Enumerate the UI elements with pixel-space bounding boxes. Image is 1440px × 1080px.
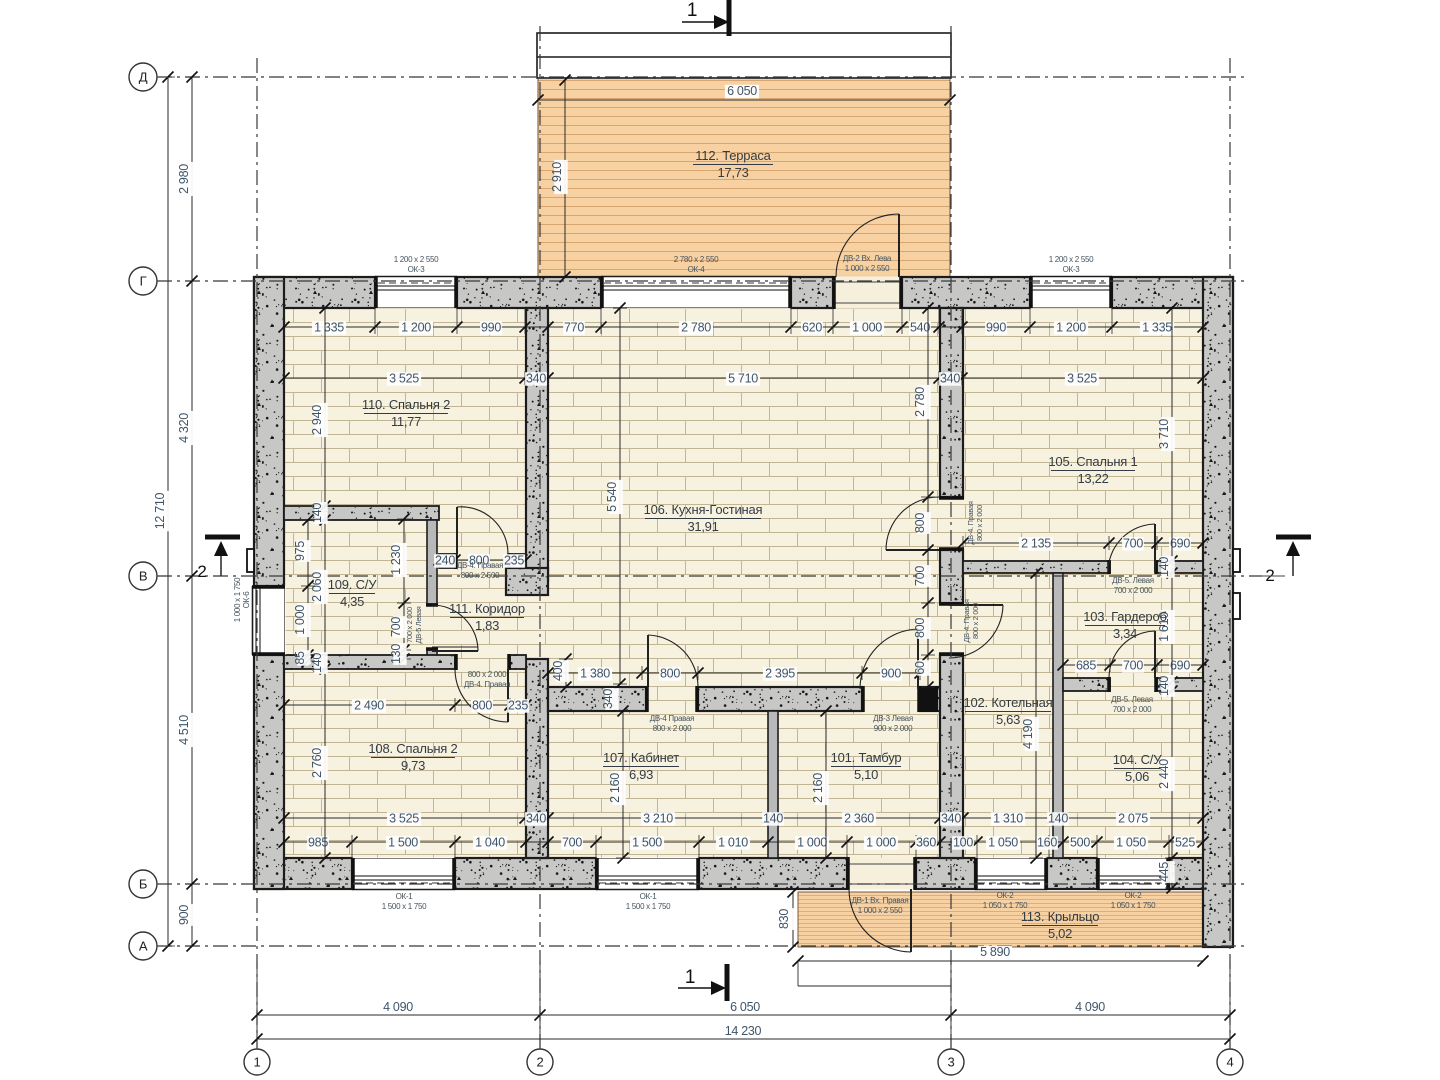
svg-text:2 135: 2 135 [1021,537,1051,551]
svg-text:2 075: 2 075 [1118,812,1148,826]
svg-text:1 500 x 1 750: 1 500 x 1 750 [626,902,671,911]
svg-text:620: 620 [802,321,822,335]
svg-text:5,10: 5,10 [854,767,878,782]
svg-text:540: 540 [910,321,930,335]
svg-text:1 380: 1 380 [580,667,610,681]
svg-text:800 x 2 000: 800 x 2 000 [468,670,507,679]
svg-text:340: 340 [526,812,546,826]
svg-text:900: 900 [177,905,191,925]
svg-text:17,73: 17,73 [717,165,748,180]
svg-text:А: А [139,939,148,954]
svg-text:1: 1 [685,967,695,988]
svg-text:1 000: 1 000 [293,605,307,635]
svg-text:1 000 x 1 750: 1 000 x 1 750 [233,577,242,622]
svg-text:В: В [139,569,147,584]
svg-text:5 890: 5 890 [980,945,1010,959]
svg-text:ОК-2: ОК-2 [997,891,1015,900]
svg-text:113. Крыльцо: 113. Крыльцо [1021,909,1100,924]
svg-text:360: 360 [916,836,936,850]
svg-text:6,93: 6,93 [629,767,653,782]
svg-text:2 490: 2 490 [354,699,384,713]
svg-text:830: 830 [777,909,791,929]
svg-text:6 050: 6 050 [727,84,757,98]
svg-text:1 010: 1 010 [718,836,748,850]
svg-text:3 525: 3 525 [1067,372,1097,386]
svg-text:2 360: 2 360 [844,812,874,826]
svg-text:3 710: 3 710 [1157,419,1171,449]
svg-text:800: 800 [913,513,927,533]
svg-text:ДВ-4. Правая: ДВ-4. Правая [464,680,510,689]
svg-text:31,91: 31,91 [687,519,718,534]
svg-text:101. Тамбур: 101. Тамбур [831,750,902,765]
svg-text:1 000 x 2 550: 1 000 x 2 550 [858,906,903,915]
svg-text:ДВ-4. Правая: ДВ-4. Правая [457,561,503,570]
svg-text:340: 340 [526,372,546,386]
svg-text:2 780: 2 780 [913,387,927,417]
svg-text:11,77: 11,77 [391,414,421,429]
svg-text:700: 700 [562,836,582,850]
svg-text:1 200: 1 200 [401,321,431,335]
svg-text:800: 800 [472,699,492,713]
svg-text:340: 340 [941,812,961,826]
svg-text:12 710: 12 710 [153,492,167,529]
svg-text:1 050: 1 050 [988,836,1018,850]
svg-text:500: 500 [1070,836,1090,850]
svg-text:4 090: 4 090 [1075,1000,1105,1014]
svg-text:2 760: 2 760 [310,748,324,778]
svg-text:1 040: 1 040 [475,836,505,850]
svg-text:1 000 x 2 550: 1 000 x 2 550 [845,264,890,273]
svg-text:1 050 x 1 750: 1 050 x 1 750 [1111,901,1156,910]
svg-text:1 500 x 1 750: 1 500 x 1 750 [382,902,427,911]
svg-text:800 x 2 500: 800 x 2 500 [461,571,500,580]
svg-text:1 050: 1 050 [1116,836,1146,850]
svg-text:ОК-1: ОК-1 [640,892,658,901]
svg-text:103. Гардероб: 103. Гардероб [1083,609,1167,624]
svg-text:2 395: 2 395 [765,667,795,681]
svg-text:800: 800 [913,618,927,638]
svg-text:106. Кухня-Гостиная: 106. Кухня-Гостиная [644,502,763,517]
svg-text:2 780 x 2 550: 2 780 x 2 550 [674,255,719,264]
svg-text:5,02: 5,02 [1048,926,1072,941]
svg-text:800: 800 [660,667,680,681]
svg-text:4 320: 4 320 [177,413,191,443]
svg-text:ДВ-5 Левая: ДВ-5 Левая [414,606,423,643]
svg-text:102. Котельная: 102. Котельная [963,695,1052,710]
svg-text:975: 975 [293,541,307,561]
svg-text:2 910: 2 910 [550,162,564,192]
svg-text:ДВ-1 Вх. Правая: ДВ-1 Вх. Правая [852,896,909,905]
svg-text:800 x 2 000: 800 x 2 000 [975,505,984,541]
svg-text:2 940: 2 940 [310,405,324,435]
svg-text:1 335: 1 335 [1142,321,1172,335]
svg-text:990: 990 [481,321,501,335]
svg-text:1: 1 [254,1055,261,1070]
svg-text:990: 990 [986,321,1006,335]
svg-text:5,06: 5,06 [1125,769,1149,784]
svg-text:ДВ-4. Правая: ДВ-4. Правая [962,599,971,642]
svg-text:2: 2 [197,562,206,581]
svg-text:690: 690 [1170,659,1190,673]
svg-text:110. Спальня 2: 110. Спальня 2 [362,397,450,412]
svg-text:111. Коридор: 111. Коридор [449,601,525,616]
svg-text:107. Кабинет: 107. Кабинет [603,750,679,765]
svg-text:6 050: 6 050 [730,1000,760,1014]
svg-text:2 980: 2 980 [177,164,191,194]
svg-text:3 525: 3 525 [389,372,419,386]
svg-text:235: 235 [504,554,524,568]
svg-text:240: 240 [435,554,455,568]
svg-text:685: 685 [1076,659,1096,673]
svg-text:1 200 x 2 550: 1 200 x 2 550 [1049,255,1094,264]
svg-text:900 x 2 000: 900 x 2 000 [874,724,913,733]
svg-text:ДВ-3 Левая: ДВ-3 Левая [873,714,913,723]
svg-text:ОК-6: ОК-6 [242,591,251,609]
svg-text:13,22: 13,22 [1077,471,1108,486]
svg-text:700 x 2 000: 700 x 2 000 [1113,705,1152,714]
svg-text:400: 400 [551,661,565,681]
svg-text:140: 140 [763,812,783,826]
svg-text:3 525: 3 525 [389,812,419,826]
svg-text:1 230: 1 230 [389,545,403,575]
svg-text:109. С/У: 109. С/У [328,577,378,592]
svg-text:1 310: 1 310 [993,812,1023,826]
svg-text:1,83: 1,83 [475,618,499,633]
svg-text:130: 130 [389,644,403,664]
svg-text:160: 160 [1037,836,1057,850]
svg-text:Д: Д [139,70,148,85]
svg-text:140: 140 [1048,812,1068,826]
svg-text:ДВ-4. Правая: ДВ-4. Правая [966,501,975,544]
svg-text:Г: Г [140,274,147,289]
svg-text:700: 700 [389,617,403,637]
svg-text:ОК-1: ОК-1 [396,892,414,901]
svg-text:445: 445 [1157,862,1171,882]
svg-text:340: 340 [601,689,615,709]
svg-text:2 160: 2 160 [811,773,825,803]
svg-text:4 510: 4 510 [177,715,191,745]
svg-text:ДВ-5. Левая: ДВ-5. Левая [1111,695,1153,704]
svg-text:112. Терраса: 112. Терраса [695,148,771,163]
svg-text:140: 140 [1157,676,1171,696]
svg-text:1 000: 1 000 [866,836,896,850]
svg-text:2 160: 2 160 [608,773,622,803]
svg-text:1 500: 1 500 [632,836,662,850]
svg-text:800 x 2 000: 800 x 2 000 [653,724,692,733]
svg-text:ДВ-4 Правая: ДВ-4 Правая [650,714,694,723]
svg-text:700 x 2 000: 700 x 2 000 [1114,586,1153,595]
svg-text:1 000: 1 000 [852,321,882,335]
svg-text:1 000: 1 000 [797,836,827,850]
svg-text:4 090: 4 090 [383,1000,413,1014]
svg-text:700 x 2 000: 700 x 2 000 [405,607,414,643]
svg-text:700: 700 [913,566,927,586]
svg-text:700: 700 [1123,537,1143,551]
svg-text:108. Спальня 2: 108. Спальня 2 [368,741,457,756]
svg-text:340: 340 [940,372,960,386]
svg-text:3,34: 3,34 [1113,626,1137,641]
svg-text:1 050 x 1 750: 1 050 x 1 750 [983,901,1028,910]
svg-text:5,63: 5,63 [996,712,1020,727]
svg-text:ОК-2: ОК-2 [1125,891,1143,900]
svg-text:140: 140 [1157,557,1171,577]
svg-text:770: 770 [564,321,584,335]
svg-text:4: 4 [1227,1055,1234,1070]
svg-text:4 190: 4 190 [1021,719,1035,749]
svg-text:1 200 x 2 550: 1 200 x 2 550 [394,255,439,264]
svg-text:1: 1 [687,0,697,21]
svg-text:2: 2 [537,1055,544,1070]
svg-text:ОК-3: ОК-3 [1063,265,1081,274]
svg-text:235: 235 [508,699,528,713]
svg-text:1 500: 1 500 [388,836,418,850]
svg-text:800 x 2 000: 800 x 2 000 [971,603,980,639]
svg-text:ДВ-5. Левая: ДВ-5. Левая [1112,576,1154,585]
svg-text:Б: Б [139,877,147,892]
svg-text:100: 100 [953,836,973,850]
svg-text:1 200: 1 200 [1056,321,1086,335]
svg-text:ОК-3: ОК-3 [408,265,426,274]
svg-text:3 210: 3 210 [643,812,673,826]
svg-text:ДВ-2 Вх. Лева: ДВ-2 Вх. Лева [843,254,892,263]
svg-text:2 060: 2 060 [310,572,324,602]
svg-text:5 540: 5 540 [605,482,619,512]
svg-text:4,35: 4,35 [340,594,364,609]
svg-text:105. Спальня 1: 105. Спальня 1 [1048,454,1137,469]
svg-text:2 780: 2 780 [681,321,711,335]
svg-text:700: 700 [1123,659,1143,673]
svg-text:9,73: 9,73 [401,758,425,773]
svg-text:690: 690 [1170,537,1190,551]
svg-text:525: 525 [1175,836,1195,850]
svg-text:104. С/У: 104. С/У [1113,752,1163,767]
svg-text:14 230: 14 230 [725,1024,762,1038]
svg-text:ОК-4: ОК-4 [688,265,706,274]
svg-text:3: 3 [948,1055,955,1070]
svg-text:1 335: 1 335 [314,321,344,335]
svg-text:85: 85 [293,651,307,665]
svg-text:5 710: 5 710 [728,372,758,386]
svg-text:900: 900 [881,667,901,681]
svg-text:60: 60 [913,661,927,675]
